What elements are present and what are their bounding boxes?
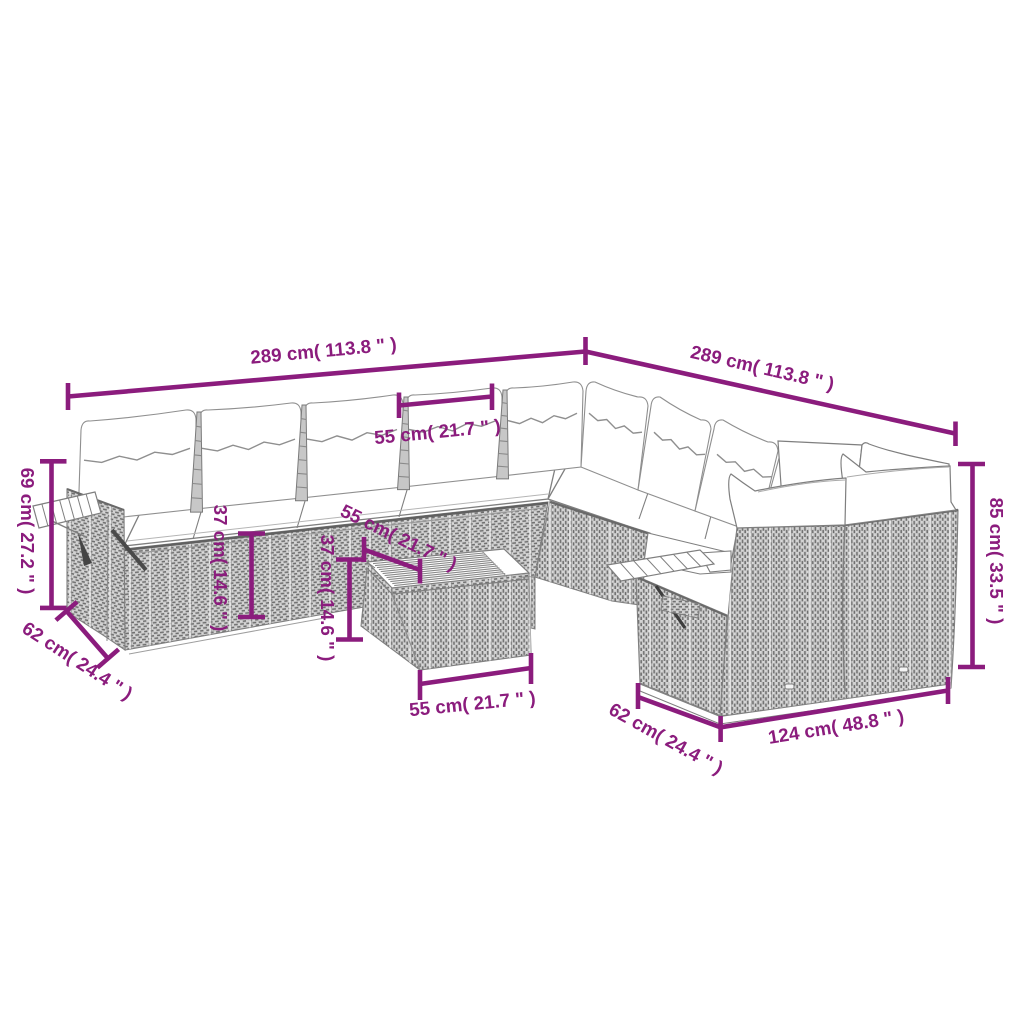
svg-text:69 cm( 27.2 " ): 69 cm( 27.2 " ) [17,468,38,595]
svg-text:37 cm( 14.6 " ): 37 cm( 14.6 " ) [210,505,231,632]
svg-text:85 cm( 33.5 " ): 85 cm( 33.5 " ) [986,498,1007,625]
svg-text:37 cm( 14.6 " ): 37 cm( 14.6 " ) [317,535,338,662]
